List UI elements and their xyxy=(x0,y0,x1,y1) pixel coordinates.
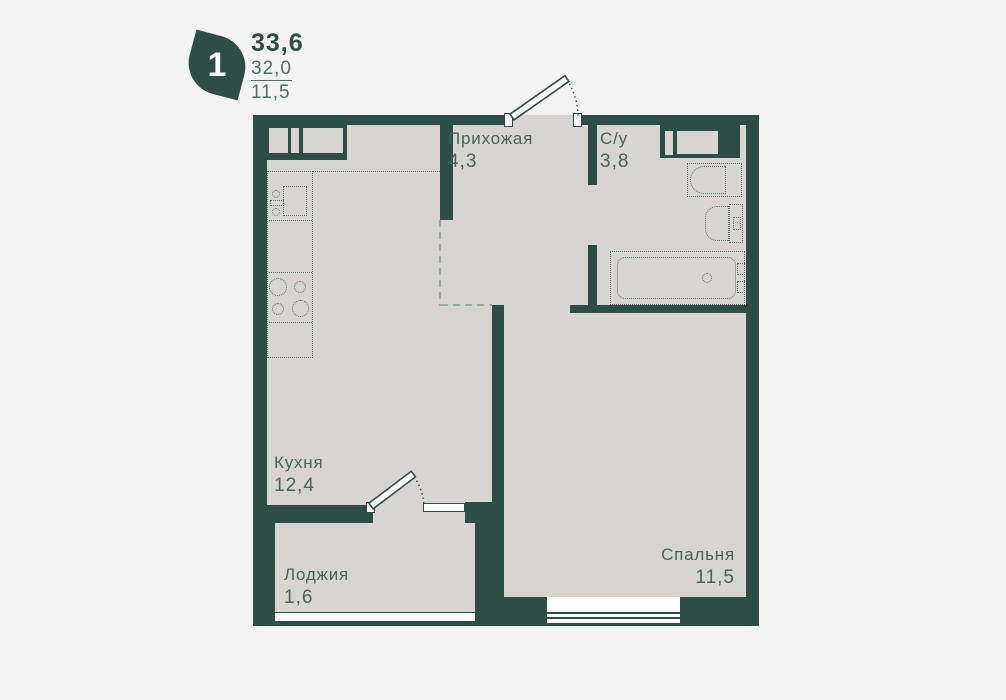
floor-plan-canvas: Прихожая 4,3 С/у 3,8 Кухня 12,4 Лоджия 1… xyxy=(0,0,1006,700)
wall-bathroom-left-upper xyxy=(588,125,597,185)
room-area: 4,3 xyxy=(448,150,533,173)
wall-loggia-lintel xyxy=(465,502,504,523)
stove-burner-large xyxy=(292,300,309,317)
bathtub-faucet xyxy=(737,281,745,293)
room-name: Прихожая xyxy=(448,128,533,150)
room-area: 3,8 xyxy=(600,150,629,173)
loggia-window xyxy=(275,612,475,622)
room-name: Кухня xyxy=(274,452,324,474)
kitchen-counter-divider xyxy=(269,272,312,273)
window-sill-line xyxy=(547,617,680,619)
vent-shaft-kitchen-niche xyxy=(269,128,288,153)
zone-boundary-dashed xyxy=(441,304,492,306)
floor-under-balcony-window xyxy=(423,512,465,523)
room-area: 12,4 xyxy=(274,474,324,497)
bedroom-window xyxy=(547,597,680,623)
kitchen-area: 11,5 xyxy=(251,82,291,104)
living-area-value: 32,0 xyxy=(251,58,292,81)
washbasin-bowl xyxy=(690,166,726,194)
vent-shaft-kitchen-niche xyxy=(303,128,343,153)
bathtub-inner xyxy=(617,257,736,299)
wall-loggia-left xyxy=(267,523,275,626)
wall-bathroom-left-lower xyxy=(588,245,597,305)
room-area: 1,6 xyxy=(284,586,349,609)
wall-loggia-right xyxy=(475,523,504,626)
room-name: Лоджия xyxy=(284,564,349,586)
entrance-door-symbol xyxy=(500,58,595,128)
kitchen-sink-symbol xyxy=(283,186,307,216)
room-label-bathroom: С/у 3,8 xyxy=(600,128,629,173)
kitchen-sink-tap xyxy=(272,208,280,216)
zone-boundary-dashed xyxy=(439,220,441,306)
floor-bedroom-passage xyxy=(504,305,570,313)
room-label-loggia: Лоджия 1,6 xyxy=(284,564,349,609)
total-area: 33,6 xyxy=(251,29,304,58)
kitchen-counter-divider xyxy=(269,322,312,323)
kitchen-zone-line xyxy=(313,171,440,172)
kitchen-faucet-symbol xyxy=(270,200,284,206)
stove-burner-small xyxy=(272,303,284,315)
wall-bathroom-bottom xyxy=(570,305,746,313)
room-label-bedroom: Спальня 11,5 xyxy=(560,544,735,589)
vent-shaft-bathroom-niche xyxy=(665,131,673,155)
toilet-button xyxy=(733,217,741,230)
bathtub-faucet xyxy=(737,263,745,275)
rooms-count: 1 xyxy=(188,36,246,94)
stove-burner-large xyxy=(269,278,287,296)
wall-kitchen-bottom xyxy=(253,505,367,523)
balcony-door-symbol xyxy=(358,462,433,510)
room-label-hallway: Прихожая 4,3 xyxy=(448,128,533,173)
room-name: С/у xyxy=(600,128,629,150)
stove-burner-small xyxy=(294,281,306,293)
room-name: Спальня xyxy=(560,544,735,566)
toilet-bowl xyxy=(705,206,729,241)
vent-shaft-kitchen-niche xyxy=(291,128,299,153)
room-label-kitchen: Кухня 12,4 xyxy=(274,452,324,497)
bathtub-drain xyxy=(702,273,712,283)
kitchen-sink-tap xyxy=(272,190,280,198)
window-sill-line xyxy=(547,612,680,614)
kitchen-counter-divider xyxy=(269,220,312,221)
living-area: 32,0 xyxy=(251,58,292,80)
vent-shaft-bathroom-niche xyxy=(677,131,718,154)
floor-bathroom-doorway xyxy=(588,185,597,245)
room-area: 11,5 xyxy=(560,566,735,589)
